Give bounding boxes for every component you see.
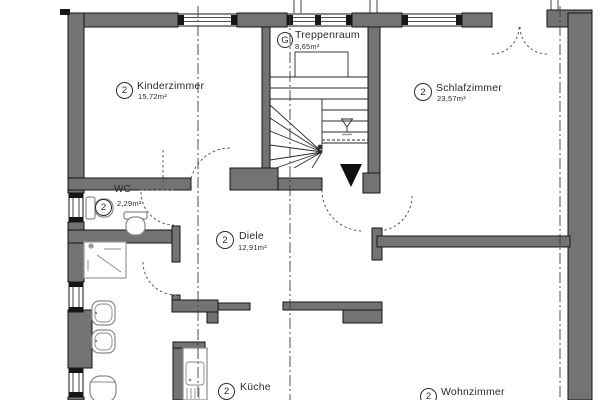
- room-label-kinderzimmer: Kinderzimmer: [137, 81, 204, 93]
- door-arcs: [141, 27, 547, 295]
- door-balcony-right: [520, 27, 547, 54]
- door-wc: [141, 192, 174, 225]
- floor-plan-drawing: [0, 0, 600, 400]
- room-badge-kinderzimmer: 2: [116, 82, 133, 99]
- toilet-icon: [90, 376, 116, 400]
- toilet-icon: [124, 212, 147, 235]
- door-kinderzimmer: [190, 148, 230, 188]
- kitchen-sink-icon: [183, 348, 207, 400]
- entrance-arrow-icon: [340, 164, 362, 187]
- sink-icon: [92, 301, 115, 325]
- room-badge-diele: 2: [216, 231, 234, 249]
- reference-lines: [294, 0, 558, 13]
- room-area-kinderzimmer: 15,72m²: [138, 93, 167, 101]
- stairs: [270, 52, 368, 168]
- room-label-treppenraum: Treppenraum: [295, 30, 360, 42]
- door-entrance: [322, 190, 363, 231]
- sink-icon: [92, 330, 115, 353]
- shower-icon: [84, 242, 126, 278]
- room-area-wc: 2,29m²: [117, 200, 142, 208]
- door-schlafzimmer: [377, 196, 412, 231]
- room-badge-wc: 2: [95, 199, 112, 216]
- room-label-wc: WC: [114, 184, 131, 195]
- door-balcony-left: [492, 27, 519, 54]
- room-area-diele: 12,91m²: [238, 244, 267, 252]
- floor-plan: 2 Kinderzimmer 15,72m² G Treppenraum 8,6…: [0, 0, 600, 400]
- room-label-schlafzimmer: Schlafzimmer: [436, 83, 502, 95]
- fixtures: [84, 197, 207, 400]
- room-label-wohnzimmer: Wohnzimmer: [441, 387, 505, 399]
- room-label-diele: Diele: [239, 231, 264, 243]
- room-badge-kueche: 2: [218, 383, 235, 400]
- room-label-kueche: Küche: [240, 382, 271, 394]
- room-badge-treppenraum: G: [277, 32, 293, 48]
- room-badge-wohnzimmer: 2: [420, 388, 437, 400]
- room-badge-schlafzimmer: 2: [414, 83, 432, 101]
- door-bad: [143, 262, 176, 295]
- room-area-schlafzimmer: 23,57m²: [437, 95, 466, 103]
- room-area-treppenraum: 8,65m²: [295, 43, 320, 51]
